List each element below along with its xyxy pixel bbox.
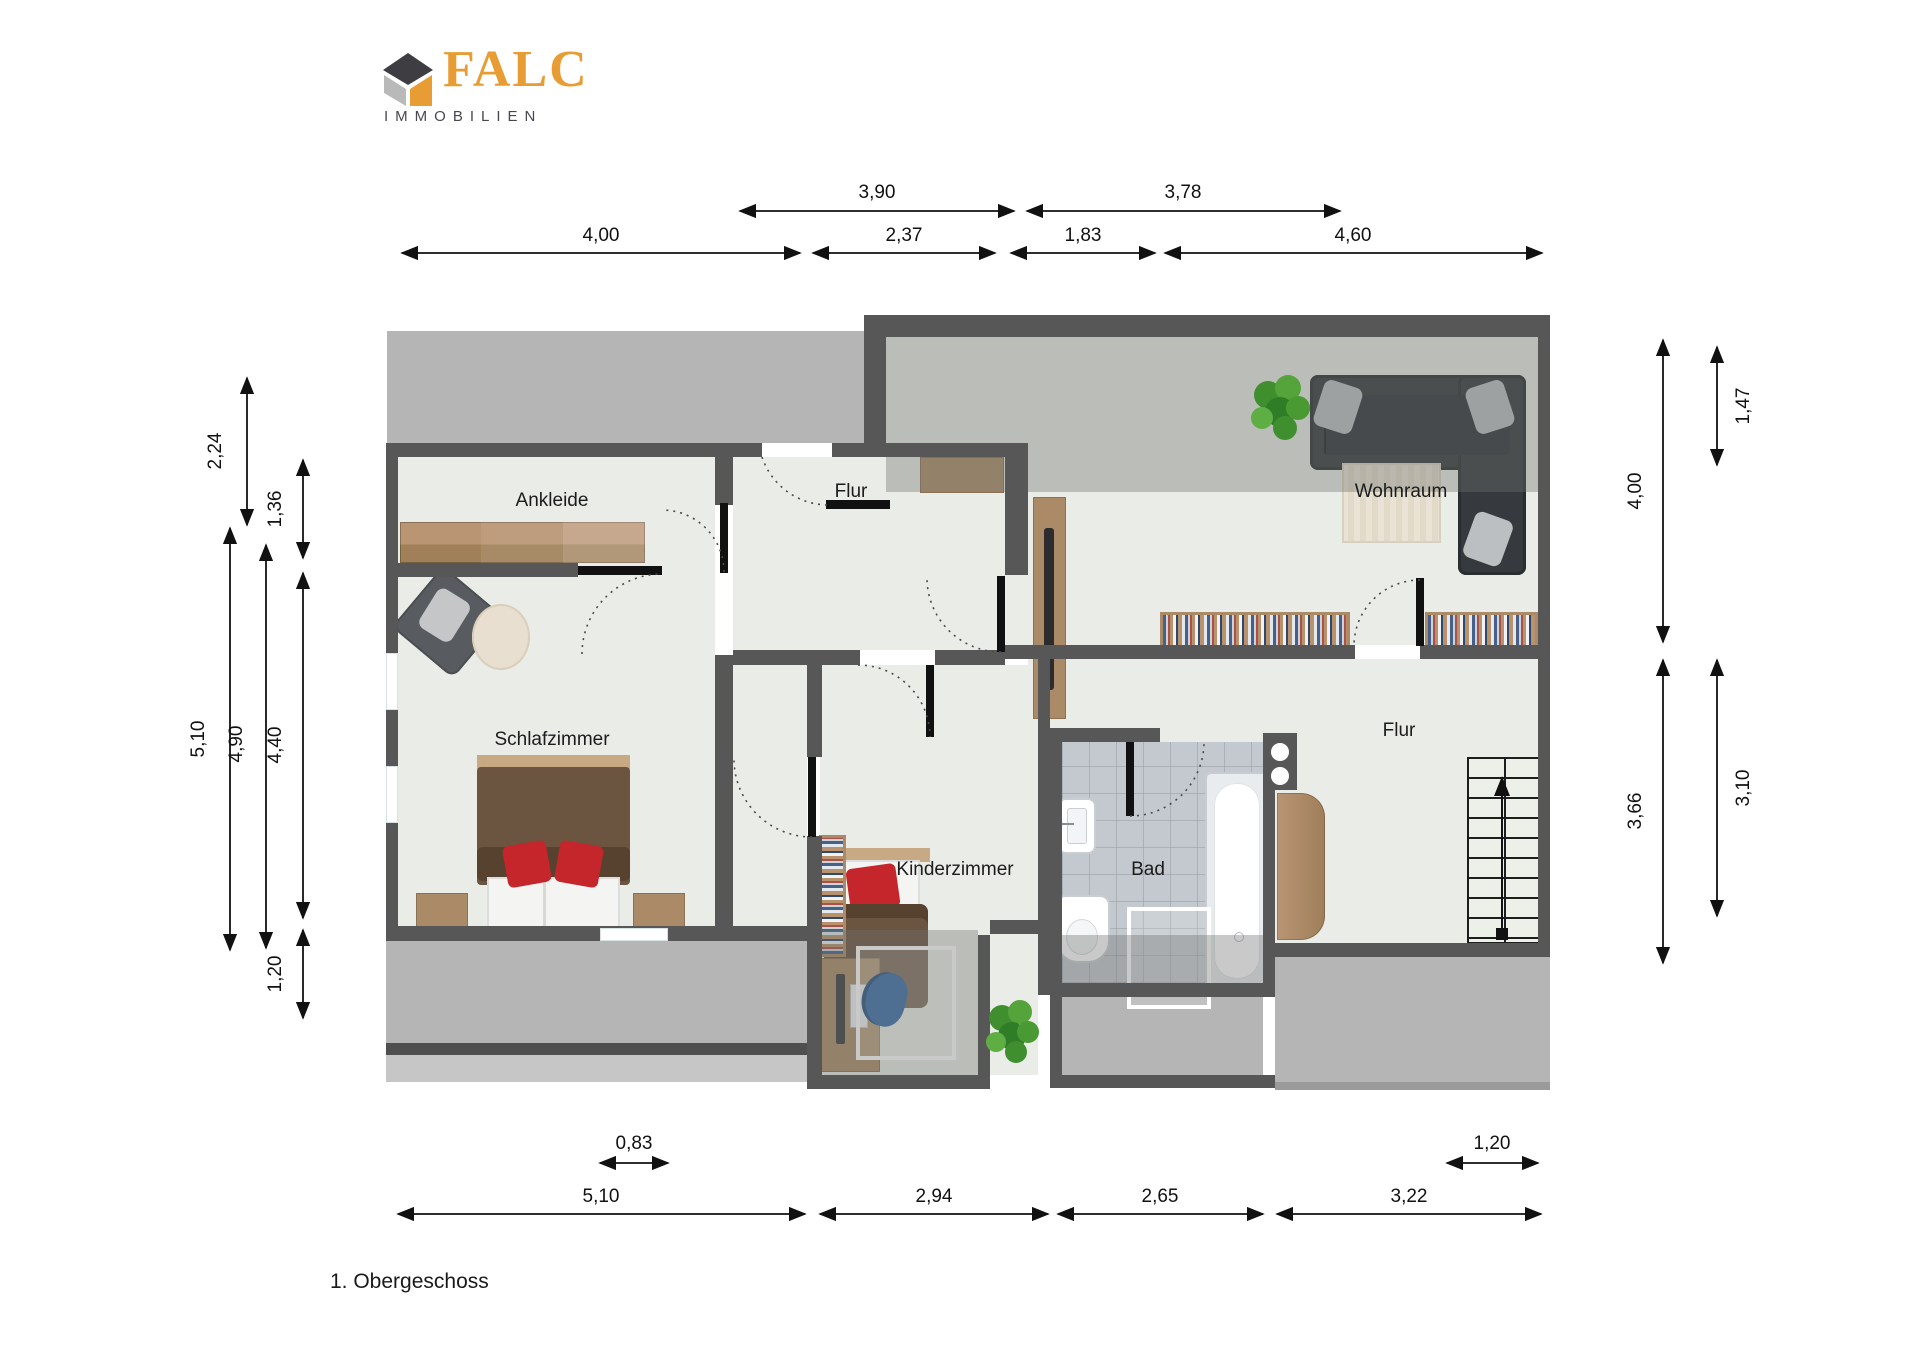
wall-kinder-bad-vert — [1038, 652, 1050, 995]
falc-logo-house-icon — [383, 52, 433, 106]
dim-bottom-322: 3,22 — [1391, 1186, 1428, 1208]
wall-kinderzimmer-top-a — [733, 650, 860, 665]
staircase — [1467, 757, 1541, 944]
armchair-pillow — [416, 586, 473, 645]
wall-wohnraum-left-vert — [864, 315, 886, 457]
dim-top-400: 4,00 — [583, 225, 620, 247]
wall-flur-wohnraum-vert — [1005, 457, 1028, 575]
wall-right-section-bottom — [1275, 943, 1550, 957]
bed-red-cushion-left — [502, 839, 553, 888]
dim-top-460: 4,60 — [1335, 225, 1372, 247]
dim-right-147: 1,47 — [1733, 388, 1755, 425]
wall-kinderzimmer-top-b — [935, 650, 1005, 665]
window-schlafzimmer-2 — [386, 766, 398, 823]
wall-kinderzimmer-left-a — [807, 650, 822, 757]
room-label-schlafzimmer: Schlafzimmer — [494, 729, 609, 751]
room-label-ankleide: Ankleide — [516, 490, 589, 512]
dim-top-378: 3,78 — [1165, 182, 1202, 204]
dim-right-366: 3,66 — [1625, 793, 1647, 830]
dim-top-183: 1,83 — [1065, 225, 1102, 247]
dim-right-400: 4,00 — [1625, 473, 1647, 510]
wall-left-section-top-a — [386, 443, 762, 457]
wall-ankleide-bottom — [386, 563, 578, 577]
dim-left-440: 4,40 — [265, 727, 287, 764]
roof-edge-bottom-left — [386, 1043, 820, 1055]
ankleide-wardrobe — [400, 522, 645, 563]
wall-bookshelf-b — [1420, 645, 1538, 659]
dim-bottom-083: 0,83 — [616, 1133, 653, 1155]
wall-bad-bottom — [1050, 983, 1275, 997]
dim-left-490: 4,90 — [226, 726, 248, 763]
roof-strip-bottom-left — [386, 1055, 820, 1082]
floor-caption: 1. Obergeschoss — [330, 1270, 489, 1294]
dim-bottom-510: 5,10 — [583, 1186, 620, 1208]
wall-left-section-top-b — [832, 443, 1028, 457]
floor-flur-corridor — [733, 650, 807, 926]
dim-bottom-265: 2,65 — [1142, 1186, 1179, 1208]
wall-outer-right — [1538, 315, 1550, 955]
room-label-kinderzimmer: Kinderzimmer — [896, 859, 1013, 881]
roof-band-bottom-left — [386, 941, 820, 1043]
dim-left-136: 1,36 — [265, 491, 287, 528]
wall-bad-top — [1050, 728, 1160, 742]
room-label-flur-rechts: Flur — [1383, 720, 1416, 742]
shade-bad-dormer — [1062, 935, 1263, 983]
wall-bad-dormer-bottom — [1050, 1075, 1275, 1088]
floorplan-page: FALC IMMOBILIEN — [0, 0, 1920, 1357]
schlafzimmer-double-bed — [477, 755, 630, 938]
bad-corner-circle-1 — [1271, 743, 1289, 761]
dim-top-390: 3,90 — [859, 182, 896, 204]
shade-wohnraum-top — [886, 337, 1538, 492]
room-label-bad: Bad — [1131, 859, 1165, 881]
bookshelf-wohnraum-left — [1160, 612, 1350, 648]
wall-bad-left — [1050, 728, 1062, 1088]
wall-wohnraum-top — [864, 315, 1550, 337]
schlafzimmer-round-rug — [472, 604, 530, 670]
bookshelf-wohnraum-right — [1425, 612, 1538, 648]
room-label-wohnraum: Wohnraum — [1355, 481, 1448, 503]
bad-sink — [1058, 798, 1096, 854]
flur-wardrobe — [1277, 793, 1325, 940]
wall-kinder-dormer-right — [978, 935, 990, 1089]
falc-logo: FALC IMMOBILIEN — [383, 48, 683, 133]
roof-area-top-left — [387, 331, 864, 443]
dim-left-224: 2,24 — [205, 433, 227, 470]
dim-right-310: 3,10 — [1733, 770, 1755, 807]
wall-bad-right — [1263, 790, 1275, 997]
dim-left-120: 1,20 — [265, 956, 287, 993]
wall-nook-bottom — [990, 920, 1050, 934]
falc-logo-subtitle: IMMOBILIEN — [384, 108, 542, 125]
dim-bottom-294: 2,94 — [916, 1186, 953, 1208]
wall-kinder-dormer-bottom — [807, 1075, 990, 1089]
bad-corner-circle-2 — [1271, 767, 1289, 785]
dim-top-237: 2,37 — [886, 225, 923, 247]
window-schlafzimmer-bottom — [600, 928, 668, 941]
shade-kinderzimmer-dormer — [820, 930, 978, 1075]
wall-flur-rooms-b — [715, 655, 733, 941]
wall-bookshelf-a — [1005, 645, 1355, 659]
roof-band-bottom-right — [1275, 957, 1550, 1090]
wall-flur-rooms-a — [715, 457, 733, 505]
falc-logo-text: FALC — [443, 40, 589, 99]
wall-kinderzimmer-left-b — [807, 836, 822, 1089]
window-schlafzimmer-1 — [386, 653, 398, 710]
room-label-flur-mitte: Flur — [835, 481, 868, 503]
dim-left-510: 5,10 — [188, 721, 210, 758]
dim-bottom-120: 1,20 — [1474, 1133, 1511, 1155]
bed-red-cushion-right — [554, 839, 605, 888]
